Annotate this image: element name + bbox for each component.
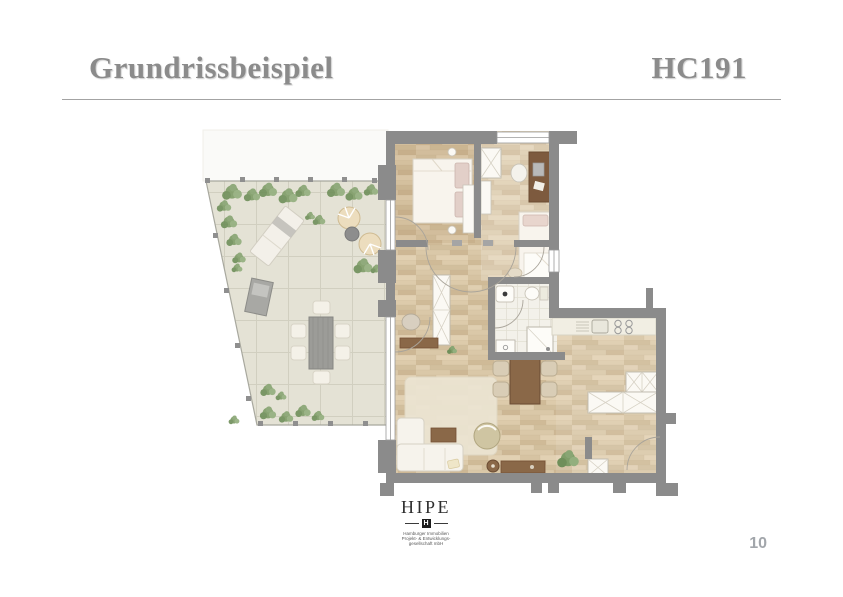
nightstand <box>448 148 456 156</box>
page-title: Grundrissbeispiel <box>89 50 334 86</box>
dining-table <box>510 357 540 404</box>
kitchen-sink <box>592 320 608 333</box>
hipe-logo: HIPE H Hamburger Immobilien Projekt- & E… <box>356 498 496 546</box>
page-number: 10 <box>749 535 767 553</box>
header-divider <box>62 99 781 100</box>
terrace <box>205 177 388 426</box>
desk <box>529 152 551 202</box>
logo-monogram: H <box>422 519 431 528</box>
window <box>549 250 559 272</box>
logo-rule-line <box>405 523 419 524</box>
coffee-table <box>431 428 456 442</box>
desk-chair <box>511 164 527 182</box>
laptop <box>533 163 544 176</box>
terrace-upper-area <box>203 130 388 181</box>
bedroom <box>413 148 474 234</box>
chair <box>402 314 420 330</box>
presentation-slide: Grundrissbeispiel HC191 <box>0 0 843 597</box>
sideboard <box>501 461 545 473</box>
armchair <box>474 423 500 449</box>
floor-plan-image <box>195 120 685 505</box>
plan-code: HC191 <box>652 50 748 86</box>
toilet <box>525 287 548 300</box>
logo-wordmark: HIPE <box>356 498 496 517</box>
logo-subtext-line: gesellschaft mbH <box>356 541 496 546</box>
wardrobe <box>463 185 474 233</box>
nightstand <box>448 226 456 234</box>
terrace-side-table <box>345 227 359 241</box>
window <box>386 200 395 250</box>
terrace-door-window <box>386 317 395 440</box>
logo-rule: H <box>356 519 496 528</box>
shower <box>527 327 553 354</box>
logo-rule-line <box>434 523 448 524</box>
window <box>497 132 549 143</box>
logo-subtext: Hamburger Immobilien Projekt- & Entwickl… <box>356 531 496 546</box>
